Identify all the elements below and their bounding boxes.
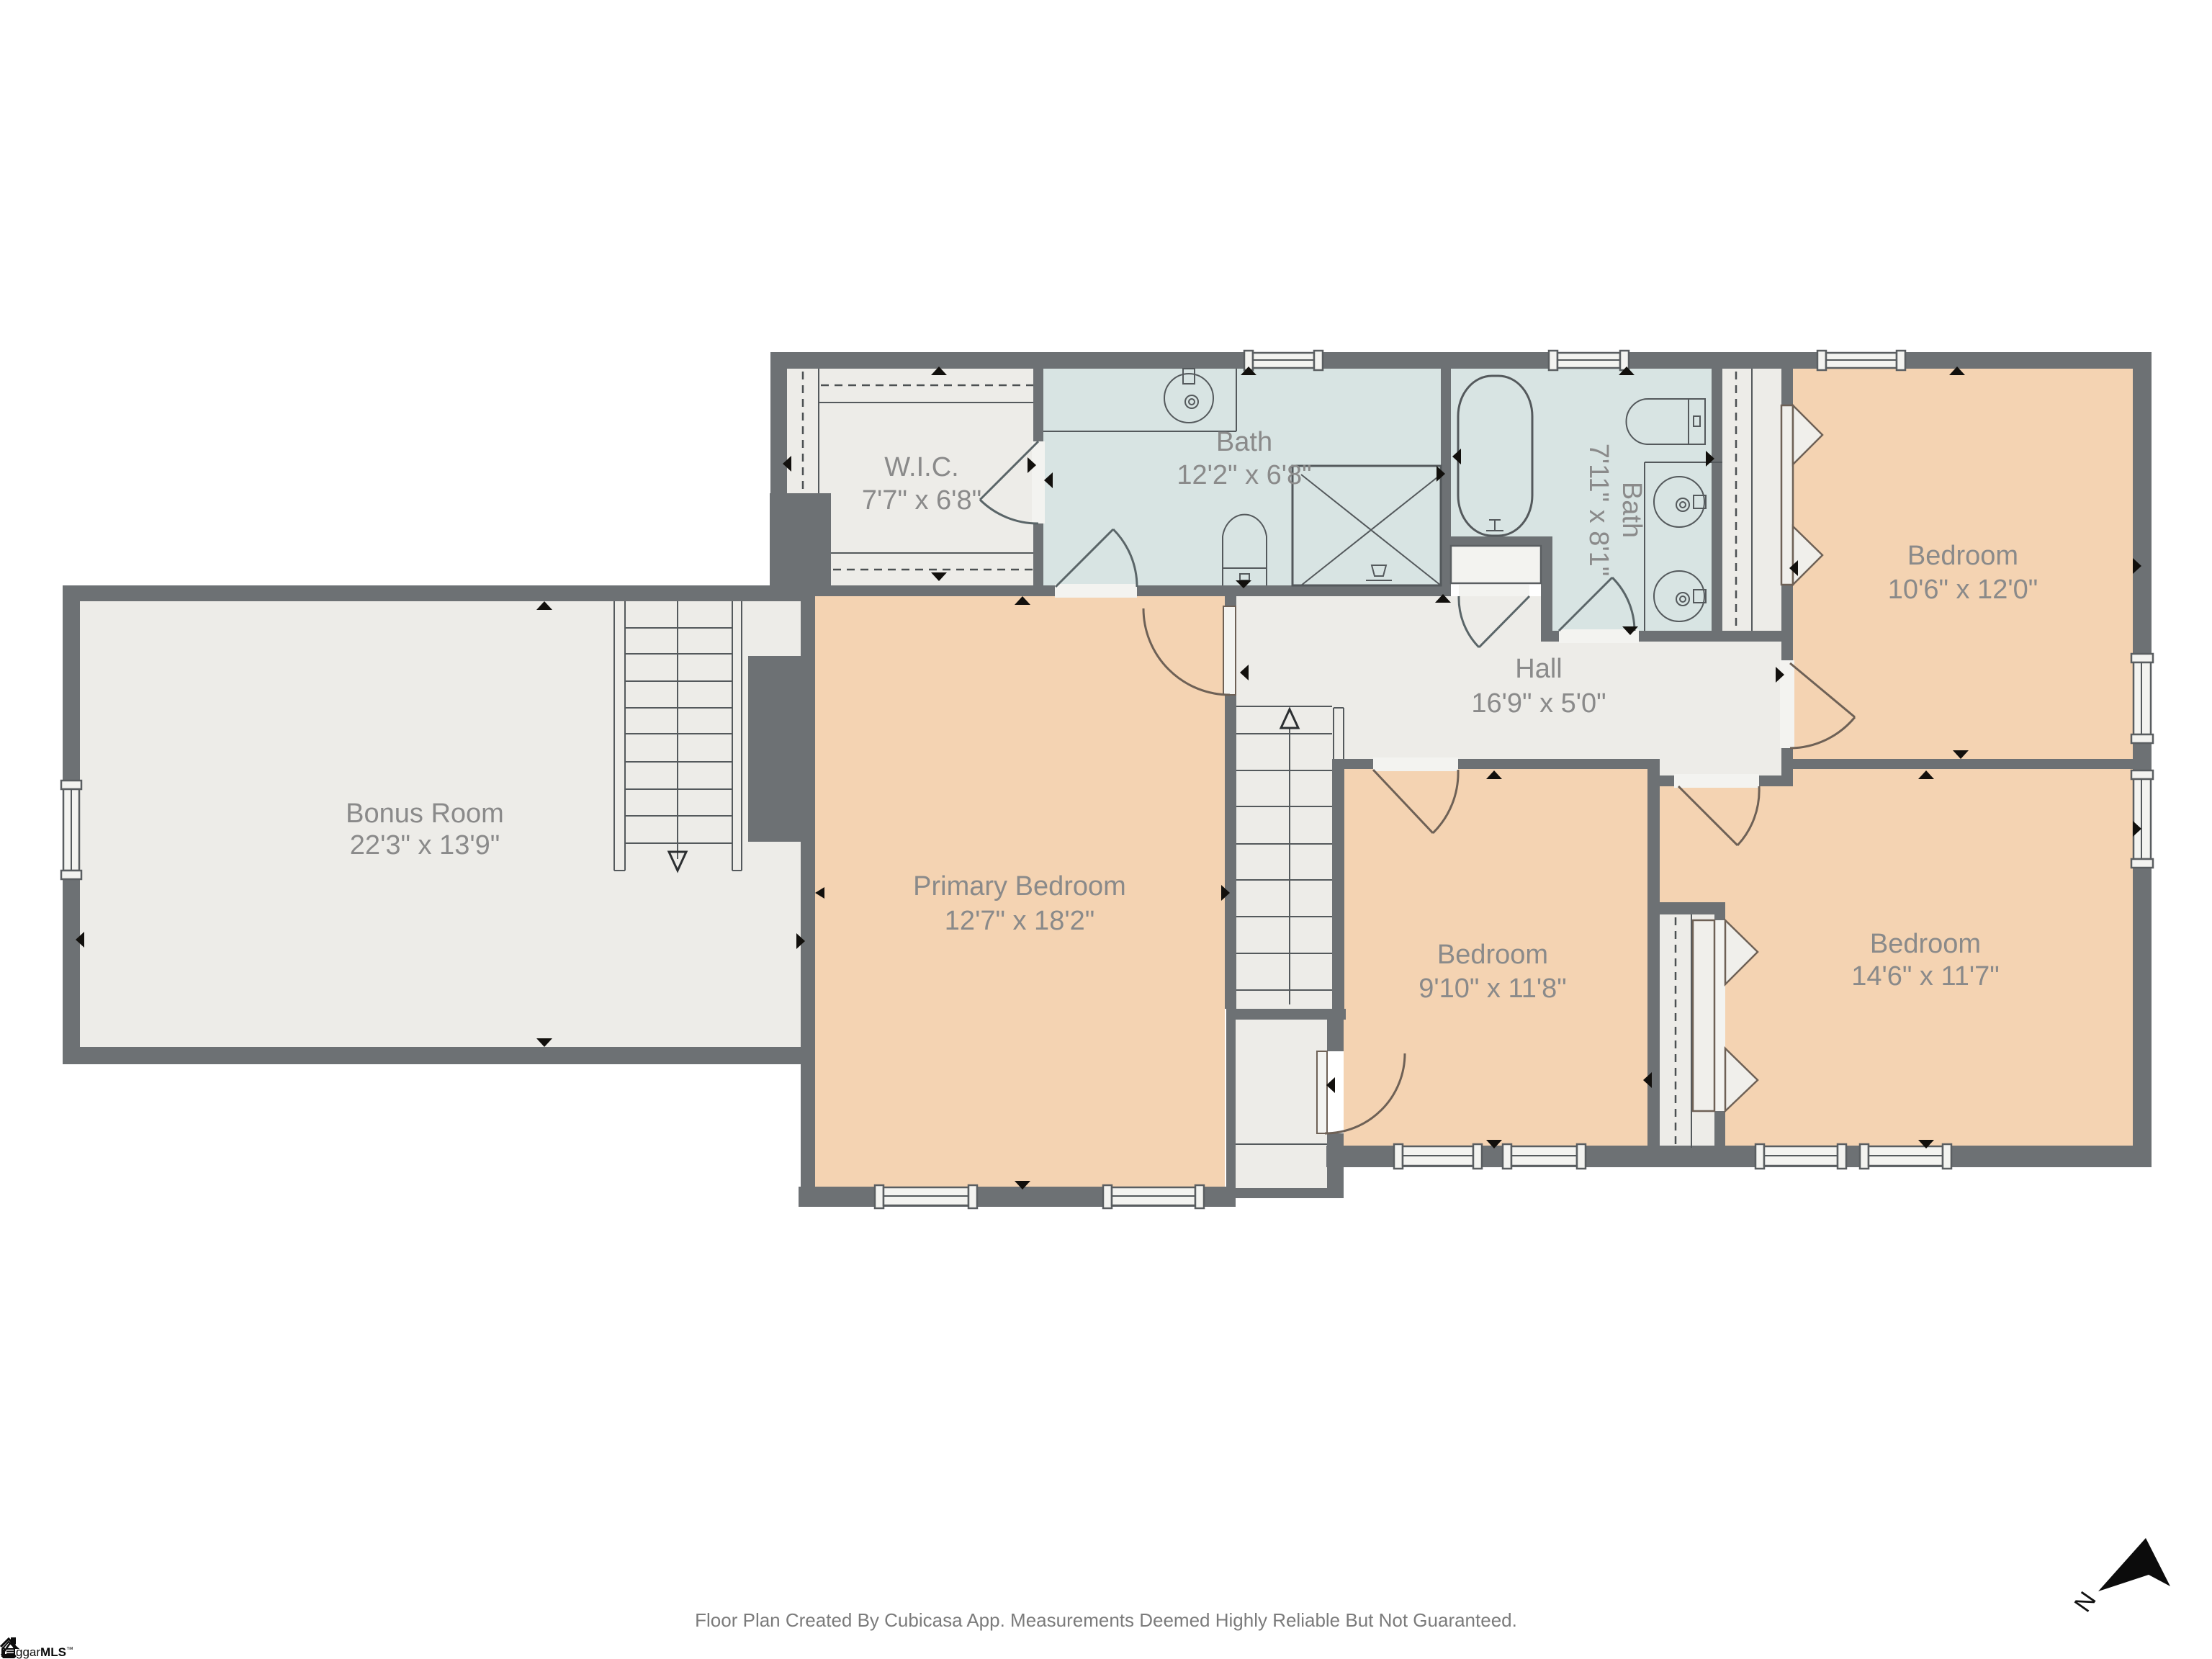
svg-text:Floor Plan Created By Cubicasa: Floor Plan Created By Cubicasa App. Meas…: [695, 1609, 1517, 1631]
svg-text:Primary Bedroom: Primary Bedroom: [913, 871, 1126, 902]
svg-text:ggarMLS™: ggarMLS™: [16, 1645, 73, 1659]
svg-text:Bonus Room: Bonus Room: [346, 799, 504, 829]
svg-text:10'6" x 12'0": 10'6" x 12'0": [1888, 575, 2038, 605]
svg-text:W.I.C.: W.I.C.: [884, 452, 958, 482]
svg-text:12'2" x 6'8": 12'2" x 6'8": [1177, 460, 1311, 490]
svg-text:Bedroom: Bedroom: [1907, 541, 2018, 571]
svg-text:22'3" x 13'9": 22'3" x 13'9": [350, 830, 500, 860]
svg-text:12'7" x 18'2": 12'7" x 18'2": [945, 906, 1094, 936]
svg-text:14'6" x 11'7": 14'6" x 11'7": [1851, 961, 2000, 992]
svg-text:Bath: Bath: [1216, 427, 1272, 457]
svg-text:16'9" x 5'0": 16'9" x 5'0": [1471, 688, 1606, 719]
svg-text:Bedroom: Bedroom: [1437, 940, 1548, 970]
svg-text:7'7" x 6'8": 7'7" x 6'8": [862, 485, 981, 516]
svg-text:Bedroom: Bedroom: [1870, 929, 1981, 959]
svg-text:9'10" x 11'8": 9'10" x 11'8": [1419, 974, 1567, 1004]
svg-text:Bath: Bath: [1617, 482, 1647, 538]
svg-text:7'11" x 8'1": 7'11" x 8'1": [1583, 444, 1614, 576]
svg-text:Hall: Hall: [1515, 654, 1562, 684]
